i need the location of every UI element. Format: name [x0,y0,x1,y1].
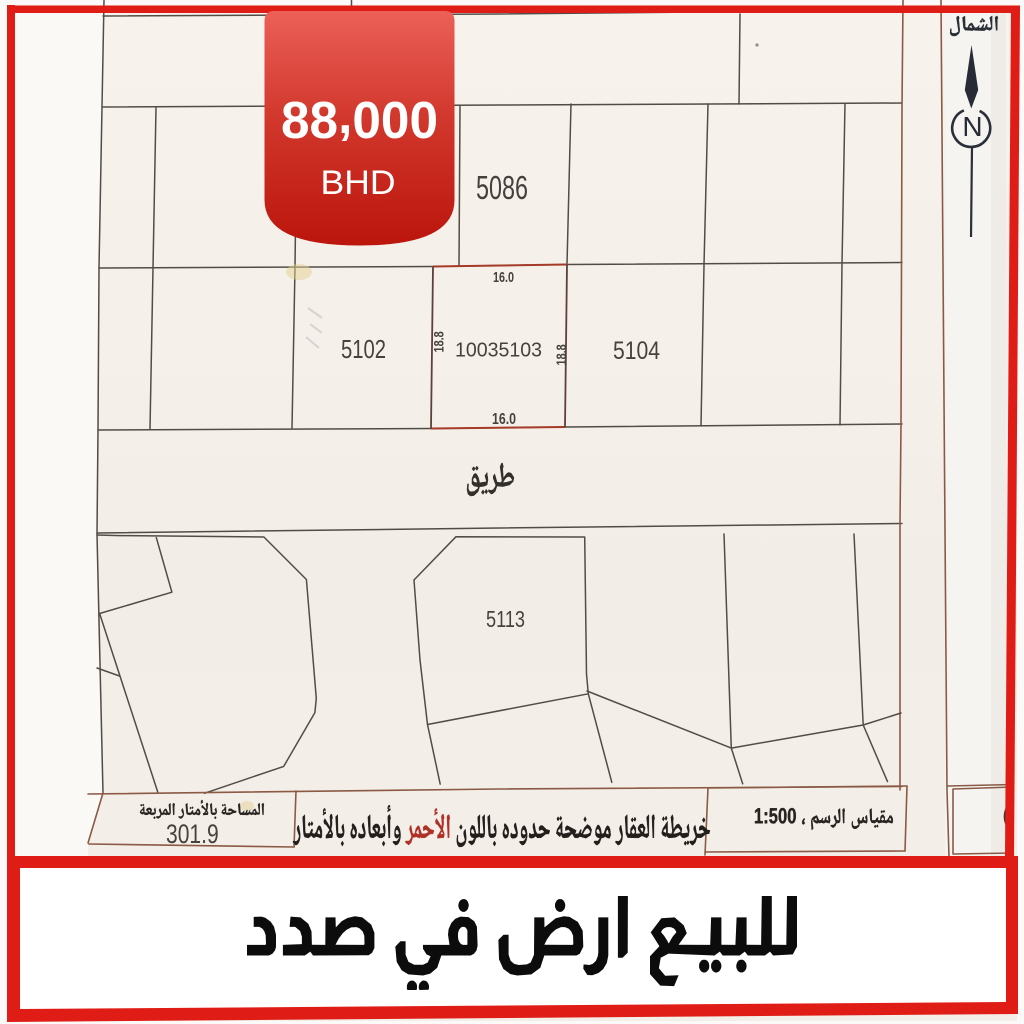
svg-text:5113: 5113 [486,606,525,632]
svg-text:301.9: 301.9 [166,819,219,849]
svg-text:N: N [962,111,982,142]
svg-text:10035103: 10035103 [455,340,542,362]
svg-text:BHD: BHD [321,164,396,202]
svg-text:16.0: 16.0 [493,269,514,286]
svg-text:5086: 5086 [476,169,528,206]
svg-text:18.8: 18.8 [431,331,447,352]
svg-text:88,000: 88,000 [281,87,438,150]
svg-text:16.0: 16.0 [492,411,516,428]
svg-text:5104: 5104 [613,337,660,365]
svg-text:5102: 5102 [341,334,386,364]
svg-text:18.8: 18.8 [554,344,570,365]
